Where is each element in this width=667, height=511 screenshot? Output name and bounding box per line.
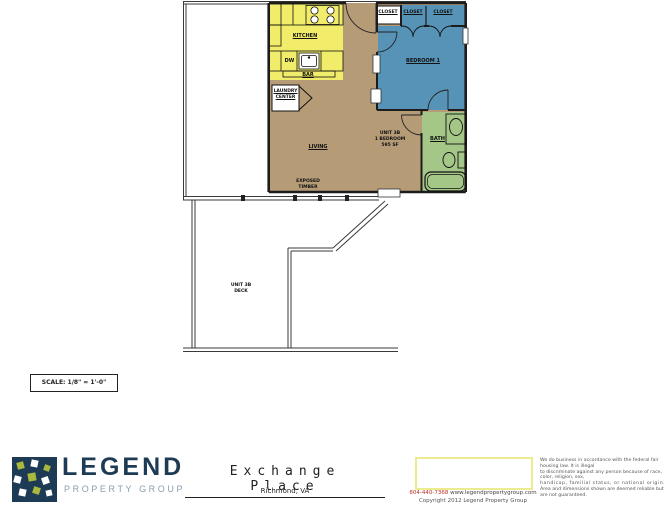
living-label: LIVING xyxy=(304,144,332,150)
flyer-page: CLOSET CLOSET CLOSET KITCHEN DW BAR LAUN… xyxy=(0,0,667,511)
legend-logo-mark xyxy=(12,457,57,502)
bedroom-label: BEDROOM 1 xyxy=(402,58,444,64)
floorplan-drawing xyxy=(0,0,667,511)
deck-label: UNIT 3B DECK xyxy=(227,283,255,295)
legal-line-2: to discriminate against any person becau… xyxy=(540,470,666,482)
property-location: Richmond, VA xyxy=(185,487,385,495)
legal-line-1: We do business in accordance with the fe… xyxy=(540,458,666,470)
copyright-line: Copyright 2012 Legend Property Group xyxy=(404,498,542,504)
website-url: www.legendpropertygroup.com xyxy=(450,490,537,496)
bar-label: BAR xyxy=(297,72,319,78)
feature-label: EXPOSED TIMBER xyxy=(291,179,325,191)
closet-label-2: CLOSET xyxy=(401,10,425,16)
kitchen-label: KITCHEN xyxy=(291,33,319,39)
closet-label-1: CLOSET xyxy=(376,10,400,16)
logo-tagline: PROPERTY GROUP xyxy=(64,484,185,494)
fair-housing-disclaimer: We do business in accordance with the fe… xyxy=(540,458,666,499)
bath-label: BATH xyxy=(428,136,447,142)
dishwasher-label: DW xyxy=(283,58,296,64)
bath-area xyxy=(422,112,466,193)
closet-label-3: CLOSET xyxy=(430,10,456,16)
unit-info-label: UNIT 3B 1 BEDROOM 595 SF xyxy=(370,131,410,149)
phone-number: 804-440-7368 xyxy=(409,490,448,496)
legal-line-4: Area and dimensions shown are deemed rel… xyxy=(540,487,666,499)
laundry-label: LAUNDRY CENTER xyxy=(273,89,298,101)
kitchen-area xyxy=(269,4,343,80)
contact-line: 804-440-7368 www.legendpropertygroup.com xyxy=(404,490,542,496)
highlight-box xyxy=(415,457,533,490)
scale-box: SCALE: 1/8" = 1'-0" xyxy=(30,374,118,392)
logo-company-name: LEGEND xyxy=(62,453,184,482)
